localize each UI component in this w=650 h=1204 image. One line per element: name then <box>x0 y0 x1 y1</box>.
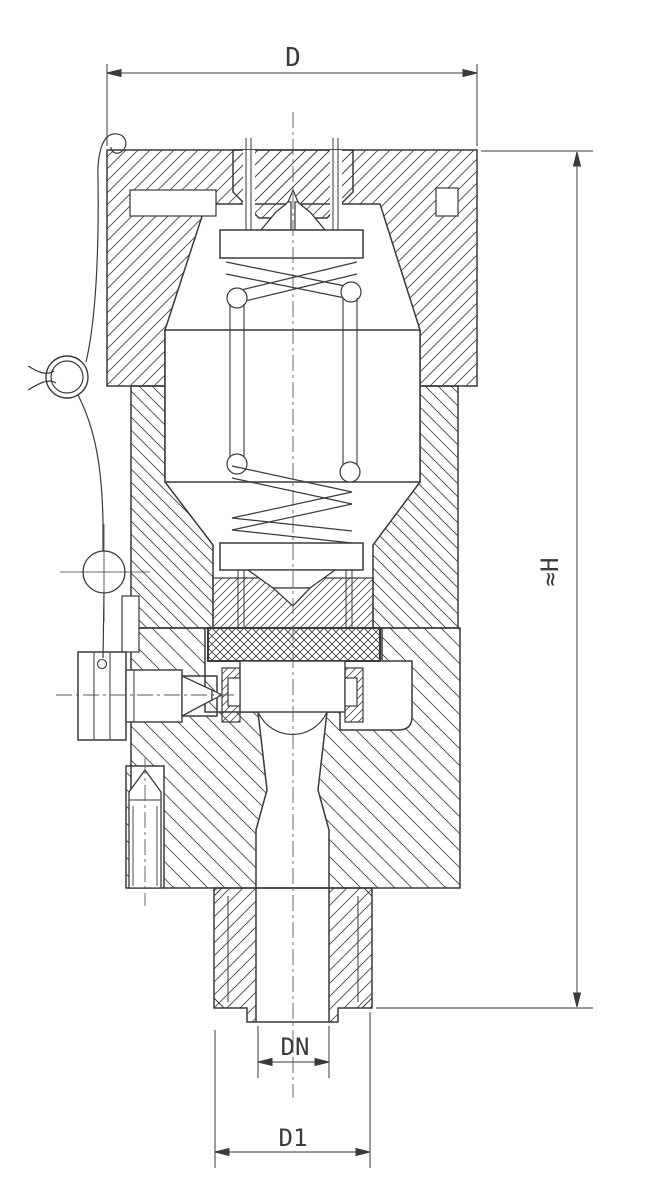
cap-slot-right <box>330 150 342 230</box>
dimension-d1-label: D1 <box>279 1124 308 1152</box>
cap-step-right <box>436 188 458 216</box>
arrowhead <box>258 1059 272 1066</box>
spring-plate-bottom <box>220 543 363 570</box>
seal-ring <box>46 356 88 398</box>
dimension-d-label: D <box>285 43 301 73</box>
disc-lip-left <box>228 678 240 706</box>
spring-wire-section <box>227 454 247 474</box>
spring-housing <box>165 330 420 482</box>
spring-wire-section <box>341 282 361 302</box>
valve-section-drawing: D ≈H DN D1 <box>0 0 650 1204</box>
bolt-wire-hole <box>98 660 107 669</box>
drawing-canvas: D ≈H DN D1 <box>0 0 650 1204</box>
knurled-adjusting-ring <box>208 628 380 661</box>
seal-wire-lower <box>78 395 103 551</box>
cap-step-left <box>130 190 216 216</box>
spring-plate-top <box>220 230 363 258</box>
dimension-dn: DN <box>258 1026 329 1078</box>
arrowhead <box>315 1059 329 1066</box>
disc-lip-right <box>345 678 357 706</box>
disc-shoulder <box>258 712 327 735</box>
dimension-h-label: ≈H <box>536 558 564 587</box>
arrowhead <box>574 993 581 1007</box>
bolt-boss <box>122 596 139 652</box>
arrowhead <box>215 1149 229 1156</box>
dimension-d: D <box>107 43 477 146</box>
seal-wire-twist <box>28 366 54 373</box>
spring-wire-section <box>340 462 360 482</box>
dimension-dn-label: DN <box>281 1033 310 1061</box>
arrowhead <box>107 70 121 77</box>
cap-slot-left <box>243 150 255 230</box>
arrowhead <box>463 70 477 77</box>
arrowhead <box>356 1149 370 1156</box>
arrowhead <box>574 152 581 166</box>
